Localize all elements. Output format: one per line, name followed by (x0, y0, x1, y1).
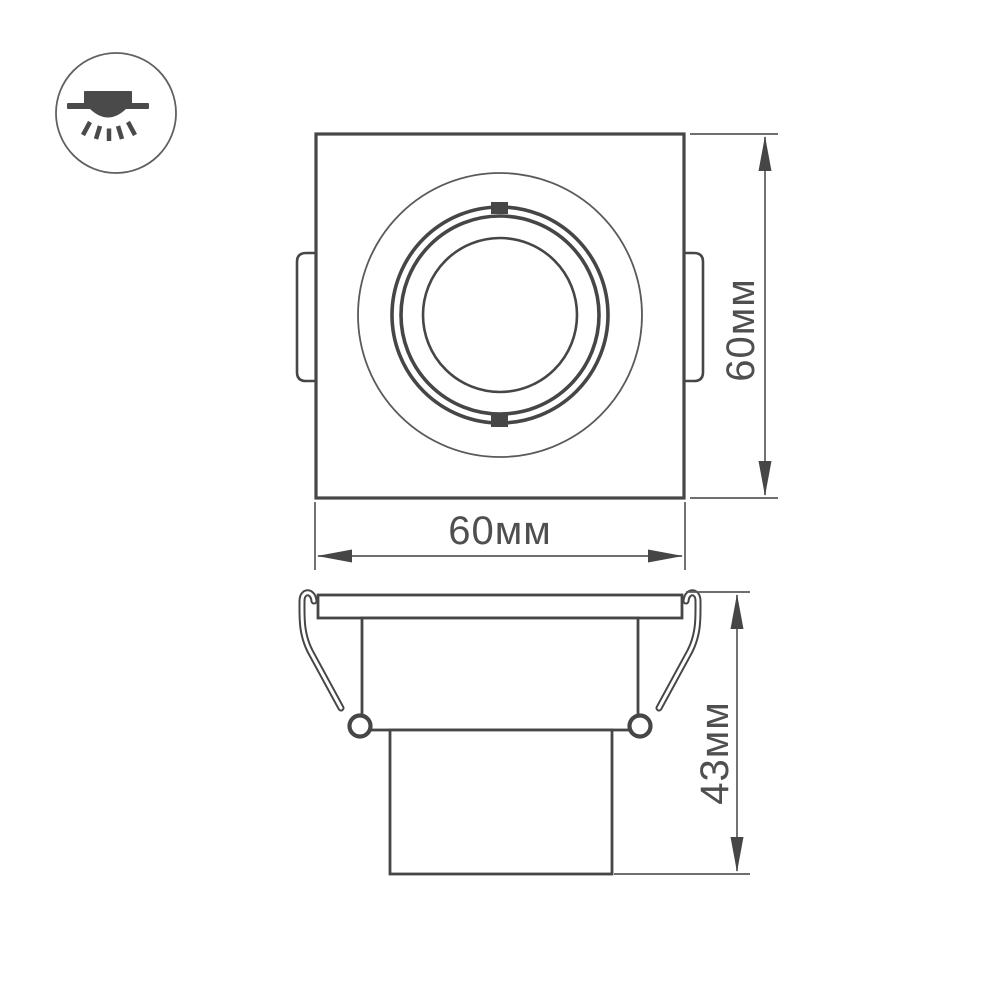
right-spring-coil (630, 716, 651, 737)
side-view (302, 593, 698, 874)
icon-lamp-body (84, 91, 132, 104)
front-width-label: 60мм (448, 509, 552, 553)
front-width-dimension: 60мм (315, 502, 685, 570)
technical-drawing-page: 60мм 60мм (0, 0, 1000, 1000)
arrowhead-up (731, 594, 744, 629)
gimbal-pivot-top (491, 202, 508, 214)
arrowhead-down (759, 461, 772, 496)
arrowhead-down (731, 837, 744, 872)
arrowhead-right (648, 550, 683, 563)
icon-ceiling-line (67, 103, 149, 109)
right-mounting-tab (684, 253, 703, 381)
arrowhead-left (317, 550, 352, 563)
gimbal-pivot-bottom (491, 414, 508, 427)
square-trim-frame (316, 134, 684, 498)
side-height-label: 43мм (693, 701, 737, 805)
front-view (297, 134, 703, 498)
left-mounting-tab (297, 253, 316, 381)
luminaire-dimension-drawing: 60мм 60мм (0, 0, 1000, 1000)
front-height-label: 60мм (719, 278, 763, 382)
left-spring-coil (350, 716, 371, 737)
heatsink-body (390, 730, 612, 874)
recessed-downlight-icon (56, 53, 176, 173)
recessed-housing (362, 618, 638, 730)
trim-flange (318, 595, 682, 618)
arrowhead-up (759, 136, 772, 171)
